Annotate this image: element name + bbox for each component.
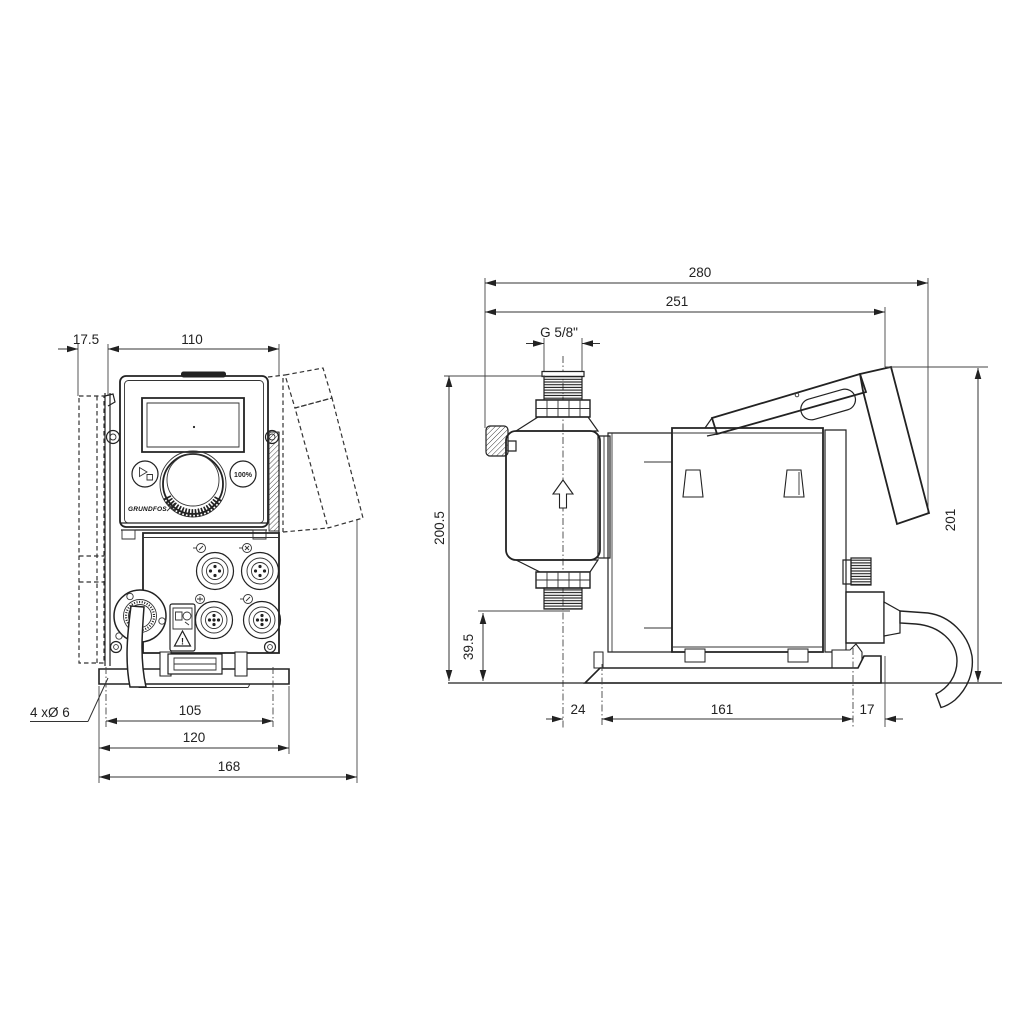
m12-connector <box>196 602 233 639</box>
dim-label-39-5: 39.5 <box>461 634 476 660</box>
dim-base-length: 161 <box>602 648 853 727</box>
base-side <box>448 644 1002 683</box>
dosing-head <box>486 426 610 572</box>
dim-label-17: 17 <box>859 702 874 717</box>
warning-label-plate: ! <box>170 604 195 651</box>
grundfos-logo: GRUNDFOS <box>128 503 175 513</box>
rear-connection <box>843 558 972 708</box>
dim-label-161: 161 <box>711 702 734 717</box>
dim-suction-height: 39.5 <box>461 611 570 681</box>
dim-label-17-5: 17.5 <box>73 332 99 347</box>
button-100-label: 100% <box>234 472 253 479</box>
label-4xd6: 4 xØ 6 <box>30 705 70 720</box>
dimensional-drawing-page: 17.5 110 <box>0 0 1024 1024</box>
start-stop-button <box>132 461 158 487</box>
click-wheel-knob <box>160 451 226 517</box>
wall-bracket-hidden <box>79 393 115 666</box>
corner-screw <box>265 642 276 653</box>
bleed-valve-knob <box>486 426 516 456</box>
dim-label-24: 24 <box>570 702 586 717</box>
rear-thread-stub <box>851 558 871 585</box>
mounting-hook <box>784 470 804 497</box>
hidden-control-cube <box>268 368 363 532</box>
dim-label-251: 251 <box>666 294 689 309</box>
power-cable <box>900 611 972 708</box>
dim-label-201: 201 <box>943 509 958 532</box>
panel-screw-left <box>107 431 120 444</box>
dim-plate-width: 120 <box>99 686 289 783</box>
flow-arrow-up-icon <box>553 480 573 508</box>
signal-symbol-icon <box>193 544 206 553</box>
display-screen <box>142 398 244 452</box>
side-view: 280 251 G 5/8" <box>432 265 1002 728</box>
m12-connector <box>242 553 279 590</box>
dim-bracket-depth: 17.5 <box>58 332 99 396</box>
dim-label-110: 110 <box>181 332 203 347</box>
dim-label-200-5: 200.5 <box>432 511 447 545</box>
top-tab <box>181 372 226 378</box>
play-stop-icon <box>140 468 148 477</box>
mounting-holes-callout: 4 xØ 6 <box>30 678 108 722</box>
max-capacity-button: 100% <box>230 461 256 487</box>
dim-front-offset: 24 <box>546 702 586 719</box>
housing-side-strips <box>269 432 279 533</box>
control-panel: 100% GRUNDFOS <box>107 372 279 540</box>
discharge-thread <box>544 377 582 401</box>
logo-text: GRUNDFOS <box>128 506 167 513</box>
dim-overall-height: 200.5 <box>432 376 545 681</box>
signal-symbol-icon <box>240 595 253 604</box>
mounting-hook <box>683 470 703 497</box>
pump-body-side <box>608 428 846 652</box>
discharge-valve <box>516 372 598 432</box>
corner-screw <box>111 642 122 653</box>
dim-label-g58: G 5/8" <box>540 325 578 340</box>
display-dot <box>193 426 195 428</box>
front-view: 17.5 110 <box>30 332 363 783</box>
control-hood-tilted <box>705 367 929 524</box>
dim-label-105: 105 <box>179 703 202 718</box>
signal-symbol-icon <box>196 595 205 604</box>
signal-symbol-icon <box>239 544 252 553</box>
m12-connector <box>244 602 281 639</box>
dim-label-168: 168 <box>218 759 241 774</box>
m12-connector <box>197 553 234 590</box>
dim-label-280: 280 <box>689 265 712 280</box>
warning-exclamation: ! <box>181 637 184 647</box>
dosing-pump-dimensional-drawing: 17.5 110 <box>0 0 1024 1024</box>
dim-hood-height: 201 <box>885 367 988 682</box>
strain-relief <box>884 602 900 636</box>
suction-valve <box>536 572 590 609</box>
suction-thread <box>544 588 582 609</box>
hood-recess <box>798 387 858 423</box>
dim-panel-width: 110 <box>108 332 279 396</box>
dim-label-120: 120 <box>183 730 206 745</box>
